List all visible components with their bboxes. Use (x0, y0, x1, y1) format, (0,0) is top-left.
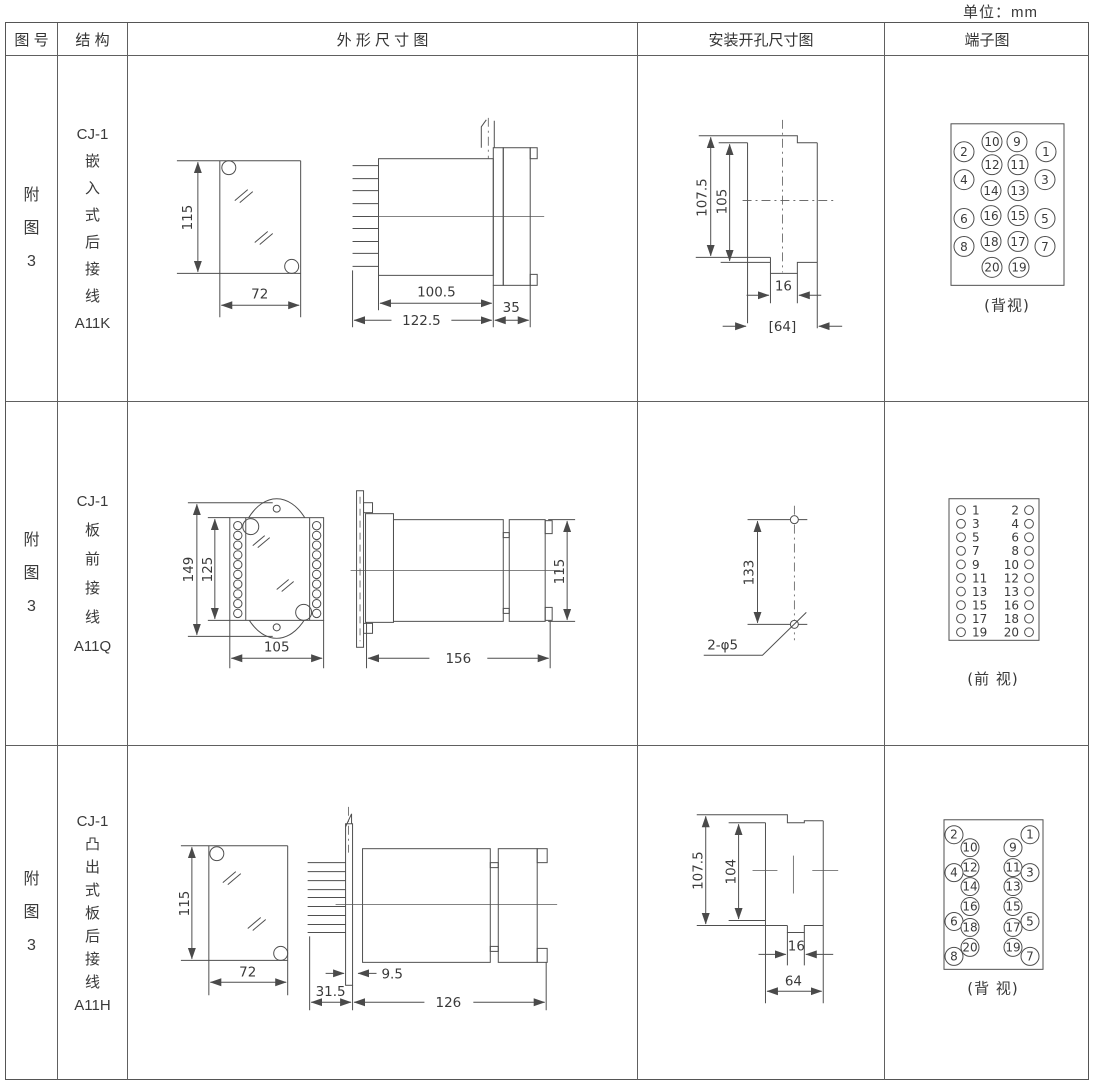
terminal-pin-number: 9 (1013, 135, 1021, 149)
side-view-row2 (351, 491, 576, 668)
terminal-number: 17 (972, 612, 987, 626)
dim-inner-height: 105 (716, 189, 731, 215)
terminal-pin-number: 17 (1010, 235, 1025, 249)
outline-drawing-row2: 149 125 105 (128, 402, 637, 745)
dim-front-height: 115 (181, 205, 196, 231)
dim-front-height: 149 (182, 557, 197, 583)
text-line: 图 (23, 566, 39, 582)
terminal-caption: (背视) (984, 296, 1030, 314)
terminal-hole (1025, 519, 1034, 528)
text-line: 凸 (85, 837, 100, 852)
terminal-number: 4 (1011, 517, 1019, 531)
outline-cell-row3: 115 72 9.5 (128, 746, 638, 1080)
terminal-pin-number: 20 (962, 940, 977, 954)
terminal-hole (1025, 614, 1034, 623)
text-line: CJ-1 (77, 814, 109, 829)
header-figure-label: 图 号 (14, 29, 48, 50)
structure-cell-row2: CJ-1板前接线A11Q (58, 402, 128, 746)
front-view-row1 (177, 161, 301, 318)
dim-front-width: 105 (264, 640, 290, 655)
pin-comb (353, 166, 379, 267)
figure-cell-row3: 附图3 (6, 746, 58, 1080)
terminal-hole (957, 601, 966, 610)
terminal-pin-number: 17 (1005, 920, 1020, 934)
terminal-hole (957, 587, 966, 596)
side-view-dims-row2: 156 115 (368, 521, 568, 667)
terminal-cell-row3: 2110912114314131615651817201987 (背 视) (885, 746, 1089, 1080)
terminal-pin-number: 19 (1005, 940, 1020, 954)
terminal-hole (957, 546, 966, 555)
terminal-number: 3 (972, 517, 980, 531)
terminal-pin-number: 3 (1041, 173, 1049, 187)
text-line: 嵌 (85, 154, 100, 169)
terminal-pin-number: 13 (1005, 880, 1020, 894)
dim-body-length: 126 (436, 996, 462, 1011)
mounting-centerlines-row1 (743, 120, 834, 273)
text-line: 接 (85, 581, 100, 596)
terminal-pin-number: 8 (960, 240, 968, 254)
terminal-hole (957, 614, 966, 623)
terminal-pins-row3: 2110912114314131615651817201987 (945, 826, 1039, 966)
terminal-hole (1025, 574, 1034, 583)
terminal-number: 15 (972, 598, 987, 612)
mounting-dims-row3: 107.5 104 16 64 (692, 816, 833, 991)
dim-plate-offset: 31.5 (316, 985, 346, 1000)
text-line: 图 (23, 905, 39, 921)
header-structure-label: 结 构 (75, 29, 109, 50)
text-line: 出 (85, 860, 100, 875)
relay-body (363, 849, 491, 963)
text-line: 接 (85, 262, 100, 277)
side-view-dims-row1: 100.5 122.5 35 (354, 285, 529, 329)
dim-notch-width: 16 (775, 279, 792, 294)
dim-outer-height: 107.5 (696, 178, 711, 217)
terminal-number: 10 (1004, 558, 1019, 572)
pin-comb (308, 863, 346, 933)
terminal-number: 9 (972, 558, 980, 572)
figure-cell-row2: 附图3 (6, 402, 58, 746)
spec-table: 图 号 结 构 外 形 尺 寸 图 安装开孔尺寸图 端子图 附图3 CJ-1嵌入… (5, 22, 1089, 1080)
header-outline-label: 外 形 尺 寸 图 (337, 29, 429, 50)
text-line: 附 (23, 872, 39, 888)
terminal-pin-number: 10 (962, 841, 977, 855)
front-view-dims-row3: 115 72 (178, 847, 286, 982)
mounting-drawing-row1: 107.5 105 16 [64] (638, 56, 884, 401)
terminal-number: 6 (1011, 531, 1019, 545)
terminal-pin-number: 2 (960, 145, 968, 159)
dim-front-height: 115 (178, 891, 193, 917)
terminal-pin-number: 11 (1005, 861, 1020, 875)
terminal-number: 18 (1004, 612, 1019, 626)
outline-drawing-row3: 115 72 9.5 (128, 746, 637, 1080)
text-line: 附 (23, 188, 39, 204)
dim-cover-length: 35 (503, 301, 520, 316)
structure-cell-row1: CJ-1嵌入式后接线A11K (58, 56, 128, 402)
dim-front-width: 72 (251, 287, 268, 302)
front-view-dims-row1: 115 72 (181, 162, 299, 305)
terminal-list-row2: 1234567891011121313151617181920 (957, 504, 1034, 640)
terminal-hole (1025, 506, 1034, 515)
structure-cell-row3: CJ-1凸出式板后接线A11H (58, 746, 128, 1080)
terminal-number: 5 (972, 531, 980, 545)
terminal-pin-number: 3 (1026, 866, 1034, 880)
terminal-number: 1 (972, 504, 980, 518)
terminal-hole (957, 628, 966, 637)
text-line: 后 (85, 235, 100, 250)
terminal-pin-number: 15 (1005, 900, 1020, 914)
terminal-pin-number: 12 (984, 158, 999, 172)
glass-hatch (223, 872, 266, 931)
terminal-pin-number: 18 (962, 920, 977, 934)
text-line: 板 (85, 906, 100, 921)
terminal-number: 19 (972, 626, 987, 640)
terminal-cell-row2: 1234567891011121313151617181920 (前 视) (885, 402, 1089, 746)
header-terminal-label: 端子图 (964, 29, 1009, 50)
terminal-pin-number: 6 (950, 915, 958, 929)
terminal-pin-number: 1 (1042, 145, 1050, 159)
relay-cover (498, 849, 537, 963)
terminal-pin-number: 18 (983, 235, 998, 249)
terminal-hole (1025, 601, 1034, 610)
dim-gap: 9.5 (382, 967, 403, 982)
text-line: A11Q (74, 639, 111, 654)
terminal-hole (957, 533, 966, 542)
header-figure: 图 号 (6, 23, 58, 56)
terminal-hole (957, 574, 966, 583)
header-structure: 结 构 (58, 23, 128, 56)
terminal-pin-number: 9 (1009, 841, 1017, 855)
terminal-pin-number: 16 (983, 209, 998, 223)
screw-hole (210, 847, 224, 861)
dim-front-width: 72 (239, 965, 256, 980)
terminal-pin-number: 11 (1010, 158, 1025, 172)
header-mounting: 安装开孔尺寸图 (638, 23, 885, 56)
dim-span-width: [64] (769, 320, 797, 335)
terminal-hole (957, 560, 966, 569)
terminal-hole (1025, 560, 1034, 569)
terminal-pin-number: 4 (960, 173, 968, 187)
text-line: 3 (27, 599, 36, 615)
mounting-cell-row1: 107.5 105 16 [64] (638, 56, 885, 402)
terminal-caption: (前 视) (967, 670, 1018, 688)
outline-cell-row2: 149 125 105 (128, 402, 638, 746)
plate-hole (273, 624, 280, 631)
side-view-dims-row3: 9.5 31.5 126 (311, 967, 545, 1011)
dim-hole-distance: 133 (743, 560, 758, 586)
terminal-hole (957, 506, 966, 515)
terminal-number: 20 (1004, 626, 1019, 640)
terminal-hole (957, 519, 966, 528)
header-mounting-label: 安装开孔尺寸图 (708, 29, 813, 50)
mounting-dims-row1: 107.5 105 16 [64] (696, 137, 842, 335)
dim-total-length: 122.5 (402, 314, 441, 329)
terminal-number: 12 (1004, 571, 1019, 585)
terminal-pin-number: 20 (984, 261, 999, 275)
mounting-drawing-row3: 107.5 104 16 64 (638, 746, 884, 1080)
terminal-pin-number: 2 (950, 828, 958, 842)
terminal-pin-number: 7 (1026, 949, 1034, 963)
terminal-hole (1025, 628, 1034, 637)
outline-cell-row1: 115 72 100.5 122.5 (128, 56, 638, 402)
terminal-pin-number: 5 (1026, 915, 1034, 929)
terminal-pin-number: 13 (1010, 184, 1025, 198)
terminal-pin-number: 16 (962, 900, 977, 914)
dim-holes-label: 2-φ5 (707, 638, 738, 653)
text-line: 式 (85, 883, 100, 898)
dim-side-length: 156 (446, 652, 472, 667)
figure-cell-row1: 附图3 (6, 56, 58, 402)
terminal-hole (1025, 546, 1034, 555)
dim-inner-height: 104 (725, 859, 740, 885)
text-line: A11K (75, 316, 111, 331)
front-view-row3 (181, 846, 288, 996)
text-line: 线 (85, 975, 100, 990)
terminal-pin-number: 5 (1041, 212, 1049, 226)
dim-outer-height: 107.5 (692, 851, 707, 890)
front-view-row2 (188, 499, 324, 669)
unit-label: 单位：mm (963, 1, 1038, 22)
text-line: CJ-1 (77, 127, 109, 142)
dim-span-width: 64 (785, 974, 802, 989)
terminal-number: 13 (972, 585, 987, 599)
text-line: A11H (74, 998, 110, 1013)
terminal-pin-number: 10 (984, 135, 999, 149)
terminal-number: 8 (1011, 544, 1019, 558)
mount-hole (790, 516, 798, 524)
text-line: CJ-1 (77, 494, 109, 509)
terminal-pin-number: 1 (1026, 828, 1034, 842)
plate-hole (273, 505, 280, 512)
header-outline: 外 形 尺 寸 图 (128, 23, 638, 56)
terminal-cell-row1: 1092112114314136161558181772019 (背视) (885, 56, 1089, 402)
terminal-pins-row1: 1092112114314136161558181772019 (954, 132, 1056, 278)
text-line: 后 (85, 929, 100, 944)
screw-hole (285, 259, 299, 273)
outline-drawing-row1: 115 72 100.5 122.5 (128, 56, 637, 401)
screw-hole (274, 946, 288, 960)
dim-side-height: 115 (553, 559, 568, 585)
terminal-diagram-row2: 1234567891011121313151617181920 (前 视) (885, 402, 1089, 745)
dim-inner-height: 125 (201, 557, 216, 583)
terminal-pin-number: 15 (1010, 209, 1025, 223)
text-line: 线 (85, 610, 100, 625)
terminal-diagram-row3: 2110912114314131615651817201987 (背 视) (885, 746, 1089, 1080)
terminal-hole (1025, 533, 1034, 542)
terminal-number: 13 (1004, 585, 1019, 599)
mounting-profile-row1 (696, 136, 818, 328)
terminal-pin-number: 8 (950, 949, 958, 963)
terminal-number: 2 (1011, 504, 1019, 518)
terminal-pin-number: 12 (962, 861, 977, 875)
terminal-pin-number: 7 (1041, 240, 1049, 254)
terminal-diagram-row1: 1092112114314136161558181772019 (背视) (885, 56, 1089, 401)
text-line: 板 (85, 523, 100, 538)
text-line: 3 (27, 938, 36, 954)
mounting-profile-row3 (697, 815, 823, 1003)
dim-body-length: 100.5 (417, 285, 456, 300)
dim-notch-width: 16 (788, 939, 805, 954)
mounting-drawing-row2: 133 2-φ5 (638, 402, 884, 745)
terminal-number: 11 (972, 571, 987, 585)
terminal-pin-number: 19 (1011, 261, 1026, 275)
terminal-pin-number: 6 (960, 212, 968, 226)
text-line: 前 (85, 552, 100, 567)
text-line: 3 (27, 254, 36, 270)
side-view-row3 (308, 807, 558, 1010)
text-line: 附 (23, 533, 39, 549)
screw-hole (222, 161, 236, 175)
mounting-cell-row2: 133 2-φ5 (638, 402, 885, 746)
text-line: 式 (85, 208, 100, 223)
terminal-hole (1025, 587, 1034, 596)
handle-clip (481, 120, 494, 148)
mounting-row2: 133 2-φ5 (704, 506, 808, 656)
text-line: 线 (85, 289, 100, 304)
text-line: 接 (85, 952, 100, 967)
glass-hatch (235, 190, 273, 245)
text-line: 图 (23, 221, 39, 237)
text-line: 入 (85, 181, 100, 196)
terminal-number: 7 (972, 544, 980, 558)
terminal-caption: (背 视) (967, 979, 1018, 997)
header-terminal: 端子图 (885, 23, 1089, 56)
terminal-number: 16 (1004, 598, 1019, 612)
terminal-pin-number: 14 (962, 880, 977, 894)
mounting-cell-row3: 107.5 104 16 64 (638, 746, 885, 1080)
terminal-pin-number: 14 (983, 184, 998, 198)
terminal-pin-number: 4 (950, 866, 958, 880)
